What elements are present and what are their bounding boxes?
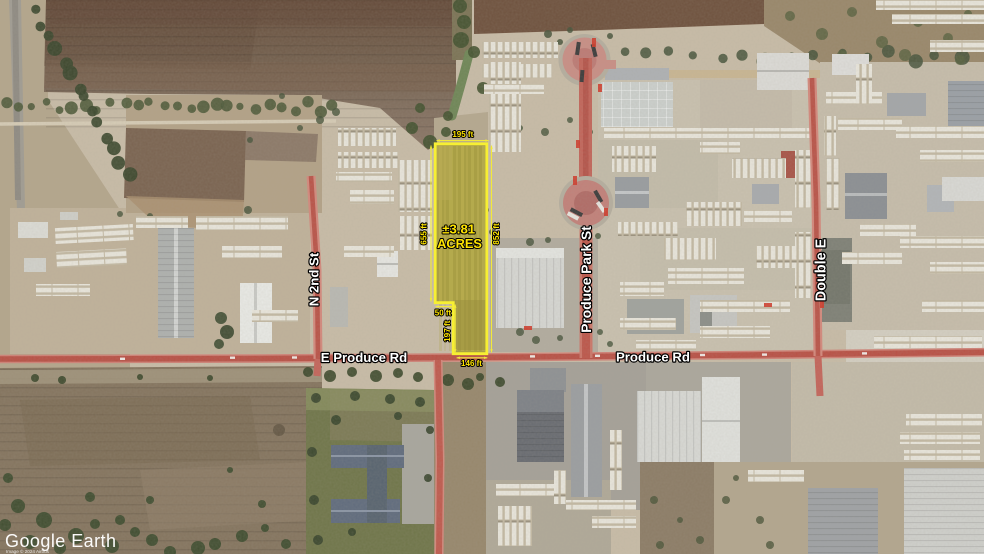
svg-text:655 ft: 655 ft (419, 223, 428, 245)
svg-text:±3.81: ±3.81 (442, 221, 475, 236)
svg-text:146 ft: 146 ft (461, 359, 482, 368)
svg-text:Produce Park St: Produce Park St (579, 226, 594, 333)
svg-text:197 ft: 197 ft (443, 320, 452, 342)
svg-text:Google Earth: Google Earth (5, 531, 116, 551)
svg-text:852 ft: 852 ft (492, 223, 501, 245)
svg-text:195 ft: 195 ft (452, 130, 473, 139)
svg-text:ACRES: ACRES (437, 236, 482, 251)
svg-text:N 2nd St: N 2nd St (307, 252, 322, 306)
svg-text:50 ft: 50 ft (435, 309, 452, 318)
svg-text:Produce Rd: Produce Rd (616, 350, 690, 365)
svg-text:Image © 2024 Airbus: Image © 2024 Airbus (6, 548, 50, 554)
svg-text:Double E: Double E (814, 238, 830, 301)
svg-text:E Produce Rd: E Produce Rd (321, 350, 407, 365)
